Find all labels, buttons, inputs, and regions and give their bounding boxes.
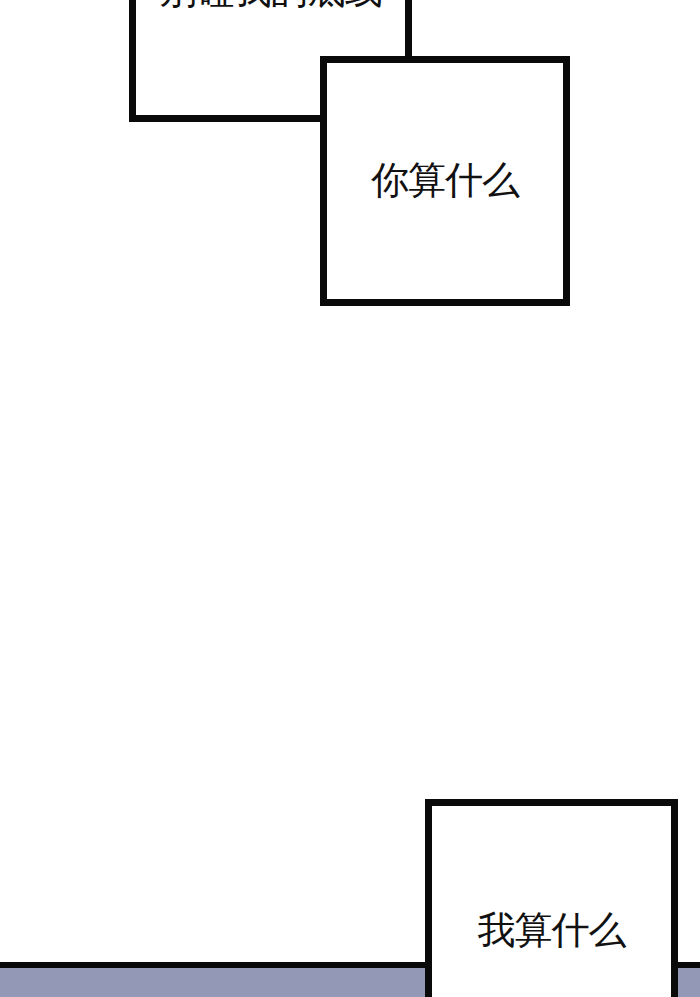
- speech-bubble-middle: 你算什么: [320, 56, 570, 306]
- speech-text-bottom: 我算什么: [478, 911, 626, 951]
- speech-text-middle: 你算什么: [371, 161, 519, 201]
- comic-page: 别碰我的底线 你算什么 我算什么: [0, 0, 700, 997]
- speech-text-top: 别碰我的底线: [160, 0, 382, 11]
- speech-bubble-bottom: 我算什么: [425, 799, 678, 997]
